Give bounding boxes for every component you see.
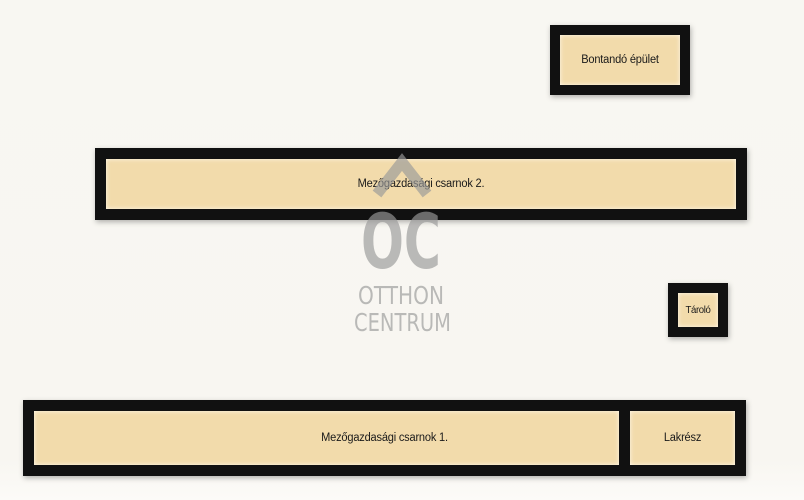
building-bontando-epulet: Bontandó épület	[550, 25, 690, 95]
building-label-csarnok2: Mezőgazdasági csarnok 2.	[119, 159, 724, 209]
building-label-tarolo: Tároló	[679, 293, 717, 327]
building-mezogazdasagi-csarnok-2: Mezőgazdasági csarnok 2.	[95, 148, 747, 220]
building-tarolo: Tároló	[668, 283, 728, 337]
building-label-csarnok1: Mezőgazdasági csarnok 1.	[48, 411, 721, 465]
watermark-line-centrum: CENTRUM	[354, 308, 451, 337]
building-row-csarnok1-lakresz: Lakrész Mezőgazdasági csarnok 1.	[23, 400, 746, 476]
building-label-bontando: Bontandó épület	[562, 35, 677, 85]
floor-plan-canvas: Bontandó épület Mezőgazdasági csarnok 2.…	[0, 0, 804, 500]
watermark-line-otthon: OTTHON	[358, 281, 444, 310]
